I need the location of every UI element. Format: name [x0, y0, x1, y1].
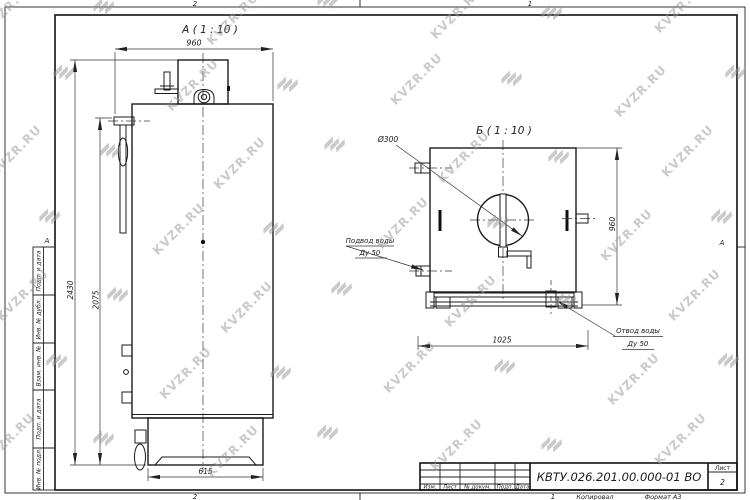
document-number: КВТУ.026.201.00.000-01 ВО [537, 470, 702, 484]
sheet-label: Лист [714, 465, 731, 472]
zone-mark-bottom-right: 1 [551, 493, 555, 500]
margin-label-vzam-inv: Взам. инв. № [36, 346, 43, 387]
outlet-label-line1: Отвод воды [616, 327, 660, 335]
zone-mark-side-right: А [719, 239, 725, 247]
sheet-number: 2 [720, 478, 725, 487]
dim-b-base-width: 1025 [492, 336, 511, 345]
dim-a-height-overall: 2430 [66, 280, 75, 299]
view-a-title: А ( 1 : 10 ) [181, 24, 238, 36]
outlet-label-line2: Ду 50 [627, 340, 649, 348]
left-margin-block: Подп. и дата Инв. № дубл. Взам. инв. № П… [33, 247, 55, 490]
inlet-label-line1: Подвод воды [346, 237, 395, 245]
title-block: Изм. Лист № докум. Подп. Дата КВТУ.026.2… [420, 463, 737, 491]
dim-b-height-right: 960 [608, 217, 617, 232]
dim-a-height-body: 2075 [92, 290, 101, 309]
view-b-rear-view: Б ( 1 : 10 ) [346, 125, 663, 350]
dim-b-flue-diameter: Ø300 [377, 135, 398, 144]
margin-label-inv-podl: Инв. № подл. [36, 448, 43, 489]
tb-header-izm: Изм. [424, 485, 437, 491]
zone-mark-bottom-left: 2 [193, 493, 198, 500]
margin-label-podp-data-1: Подп. и дата [36, 250, 43, 291]
dim-a-base-width: 615 [198, 467, 213, 476]
copied-label: Копировал [576, 493, 613, 500]
drawing-sheet: 2 1 2 1 А А Копировал Формат А3 Подп. и … [0, 0, 750, 500]
margin-label-podp-data-2: Подп. и дата [36, 398, 43, 439]
tb-header-list: Лист [442, 485, 458, 491]
technical-drawing: 2 1 2 1 А А Копировал Формат А3 Подп. и … [0, 0, 750, 500]
tb-header-podp: Подп. [497, 485, 514, 491]
tb-header-ndocum: № докум. [463, 485, 491, 491]
zone-mark-top-left: 2 [193, 0, 198, 8]
margin-label-inv-dubl: Инв. № дубл. [36, 298, 43, 339]
view-a-side-elevation: А ( 1 : 10 ) [66, 24, 273, 481]
zone-mark-side-left: А [44, 237, 50, 245]
dim-a-width-top: 960 [186, 39, 201, 48]
view-b-title: Б ( 1 : 10 ) [476, 125, 532, 137]
zone-mark-top-right: 1 [528, 0, 532, 8]
tb-header-data: Дата [514, 485, 530, 491]
format-label: Формат А3 [644, 493, 681, 500]
